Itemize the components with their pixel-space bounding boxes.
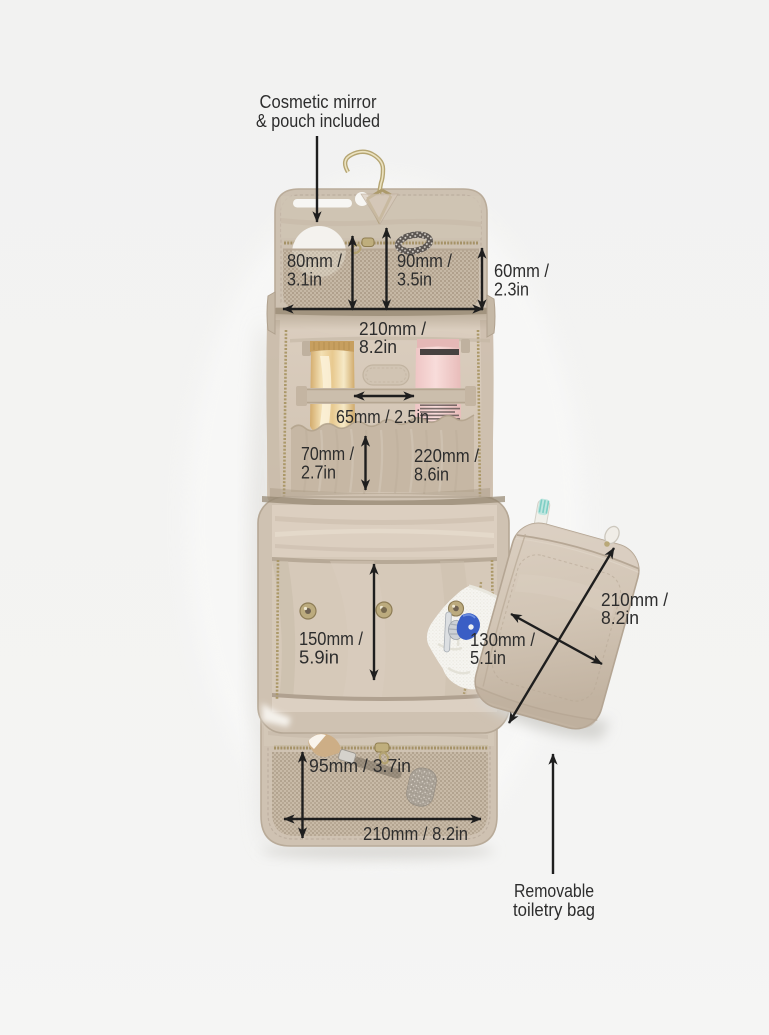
svg-text:8.2in: 8.2in (601, 608, 639, 628)
svg-text:210mm /: 210mm / (601, 590, 668, 610)
svg-text:70mm /: 70mm / (301, 444, 354, 464)
svg-text:Removable: Removable (514, 881, 594, 901)
svg-text:5.9in: 5.9in (299, 648, 339, 668)
svg-text:& pouch included: & pouch included (256, 111, 380, 131)
svg-text:Cosmetic mirror: Cosmetic mirror (260, 92, 377, 112)
svg-text:210mm /: 210mm / (359, 319, 426, 339)
svg-text:8.2in: 8.2in (359, 337, 397, 357)
svg-text:65mm / 2.5in: 65mm / 2.5in (336, 407, 429, 427)
svg-text:130mm /: 130mm / (470, 630, 535, 650)
svg-text:3.1in: 3.1in (287, 270, 322, 290)
svg-text:220mm /: 220mm / (414, 446, 479, 466)
svg-text:90mm /: 90mm / (397, 251, 452, 271)
svg-text:210mm / 8.2in: 210mm / 8.2in (363, 824, 468, 844)
svg-text:2.7in: 2.7in (301, 463, 336, 483)
svg-text:5.1in: 5.1in (470, 648, 506, 668)
svg-text:toiletry bag: toiletry bag (513, 900, 595, 920)
svg-text:80mm /: 80mm / (287, 251, 342, 271)
svg-text:8.6in: 8.6in (414, 465, 449, 485)
svg-text:60mm /: 60mm / (494, 261, 549, 281)
svg-text:150mm /: 150mm / (299, 629, 363, 649)
svg-text:2.3in: 2.3in (494, 280, 529, 300)
svg-text:3.5in: 3.5in (397, 270, 432, 290)
svg-text:95mm / 3.7in: 95mm / 3.7in (309, 756, 411, 776)
